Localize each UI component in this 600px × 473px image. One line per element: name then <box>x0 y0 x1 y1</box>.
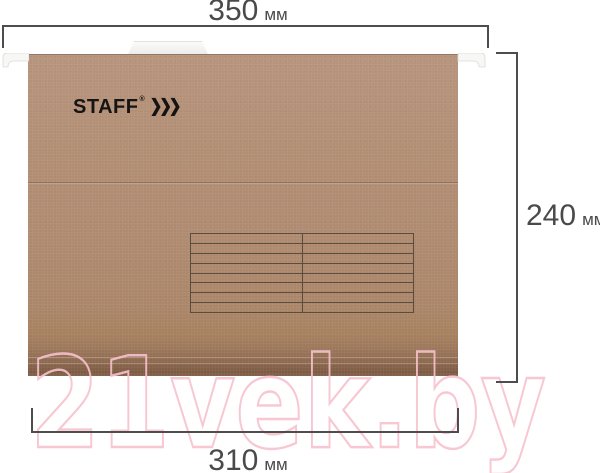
table-cell <box>303 244 414 253</box>
registered-mark: ® <box>139 96 144 103</box>
dimension-top-unit: мм <box>264 5 287 24</box>
table-row <box>191 264 413 274</box>
table-cell <box>191 244 303 253</box>
table-cell <box>303 283 414 292</box>
hanger-hook-right-icon <box>457 53 486 69</box>
dimension-top-bracket <box>2 25 489 48</box>
table-row <box>191 234 413 244</box>
table-cell <box>191 293 303 302</box>
table-cell <box>191 264 303 273</box>
dimension-right-label: 240мм <box>526 201 600 231</box>
table-cell <box>303 274 414 283</box>
table-cell <box>191 303 303 312</box>
label-table <box>190 233 414 313</box>
product-dimension-diagram: 350мм 240мм 310мм STAFF ® ❯❯❯ 21vek.by <box>0 0 600 473</box>
table-cell <box>303 264 414 273</box>
dimension-right-bracket <box>496 52 518 383</box>
fold-crease-line <box>28 182 458 183</box>
brand-text: STAFF <box>73 97 138 117</box>
staff-logo: STAFF ® ❯❯❯ <box>73 97 178 117</box>
dimension-top-label: 350мм <box>178 0 318 26</box>
dimension-right-value: 240 <box>526 199 576 232</box>
table-row <box>191 244 413 254</box>
table-row <box>191 293 413 303</box>
hanger-hook-left-icon <box>2 53 29 69</box>
dimension-top-value: 350 <box>208 0 258 27</box>
table-cell <box>191 283 303 292</box>
dimension-right-unit: мм <box>582 210 600 229</box>
chevrons-icon: ❯❯❯ <box>150 98 179 115</box>
folder-body: STAFF ® ❯❯❯ <box>28 54 458 376</box>
table-cell <box>303 303 414 312</box>
table-cell <box>191 274 303 283</box>
table-cell <box>303 234 414 243</box>
dimension-bottom-value: 310 <box>208 444 258 473</box>
table-row <box>191 283 413 293</box>
dimension-bottom-unit: мм <box>264 455 287 473</box>
table-cell <box>191 234 303 243</box>
dimension-bottom-bracket <box>31 408 459 433</box>
table-cell <box>191 254 303 263</box>
table-cell <box>303 254 414 263</box>
table-row <box>191 254 413 264</box>
table-row <box>191 274 413 284</box>
table-row <box>191 303 413 312</box>
table-cell <box>303 293 414 302</box>
dimension-bottom-label: 310мм <box>178 446 318 473</box>
